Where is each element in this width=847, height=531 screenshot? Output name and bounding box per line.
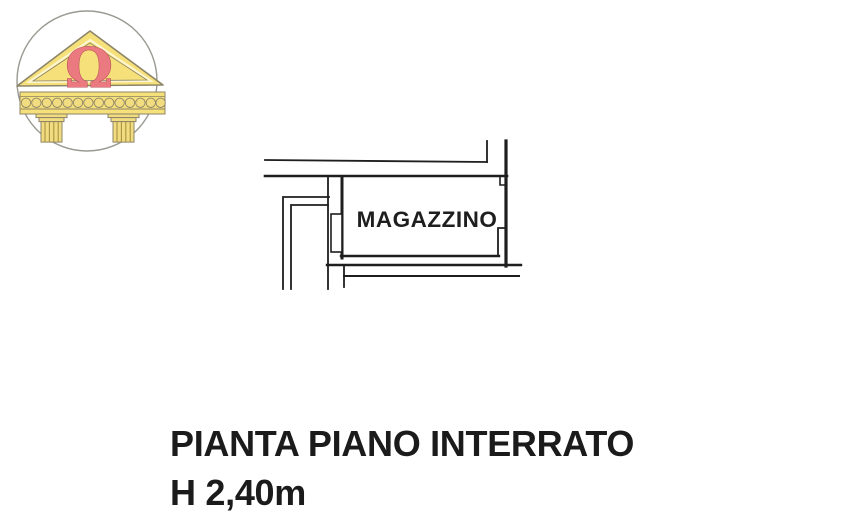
left-wall-pier <box>331 214 342 252</box>
plan-caption: PIANTA PIANO INTERRATO H 2,40m <box>170 419 634 517</box>
left-structure-outer <box>283 197 329 289</box>
caption-height: H 2,40m <box>170 468 634 517</box>
left-column <box>36 114 67 142</box>
agency-logo: Ω <box>17 11 165 151</box>
frieze-band <box>20 92 165 114</box>
room-label: MAGAZZINO <box>357 207 498 232</box>
scanned-plan-page: Ω <box>0 0 847 531</box>
top-right-notch <box>500 177 505 185</box>
upper-wall-line <box>265 160 487 162</box>
right-wall-inner-jog <box>498 228 505 256</box>
caption-title: PIANTA PIANO INTERRATO <box>170 419 634 468</box>
right-column <box>108 114 139 142</box>
omega-symbol: Ω <box>65 36 113 100</box>
left-structure-inner <box>291 205 328 289</box>
